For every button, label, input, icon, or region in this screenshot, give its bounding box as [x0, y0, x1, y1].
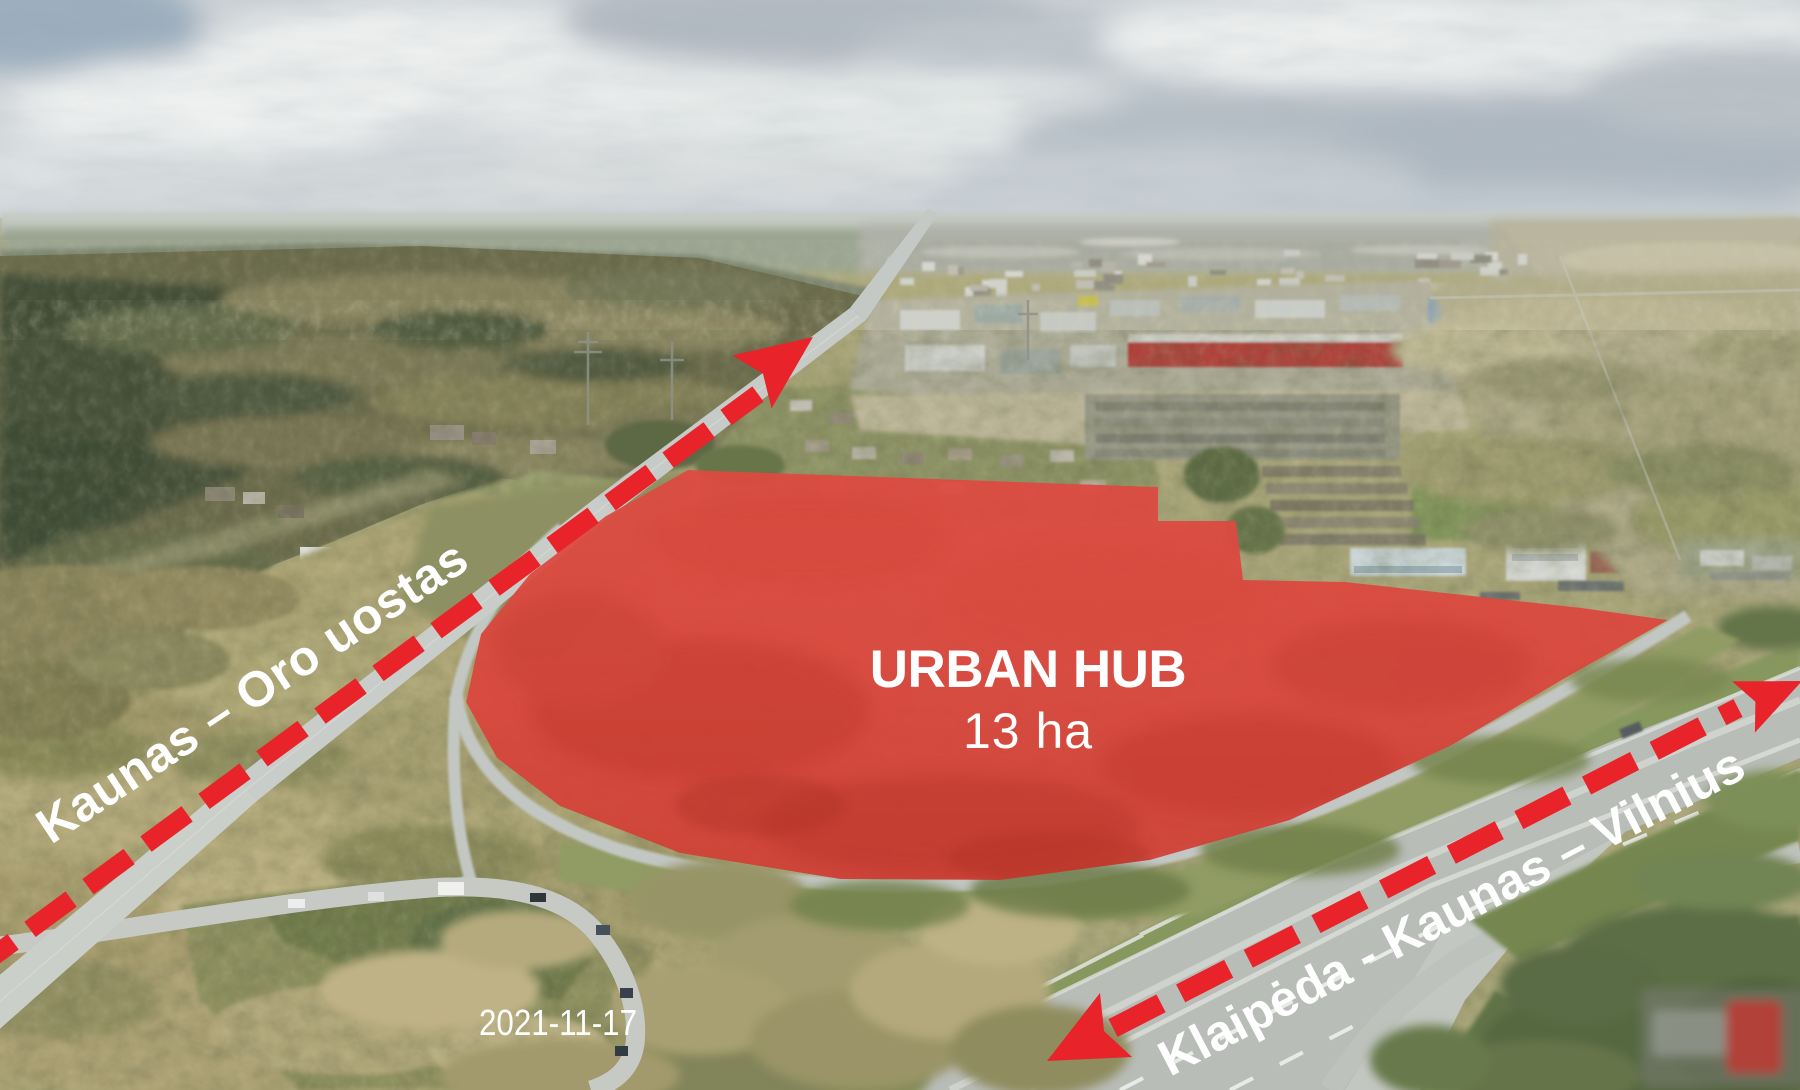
svg-text:13 ha: 13 ha — [963, 703, 1093, 759]
svg-text:2021-11-17: 2021-11-17 — [479, 1002, 637, 1043]
svg-text:URBAN HUB: URBAN HUB — [870, 640, 1186, 699]
